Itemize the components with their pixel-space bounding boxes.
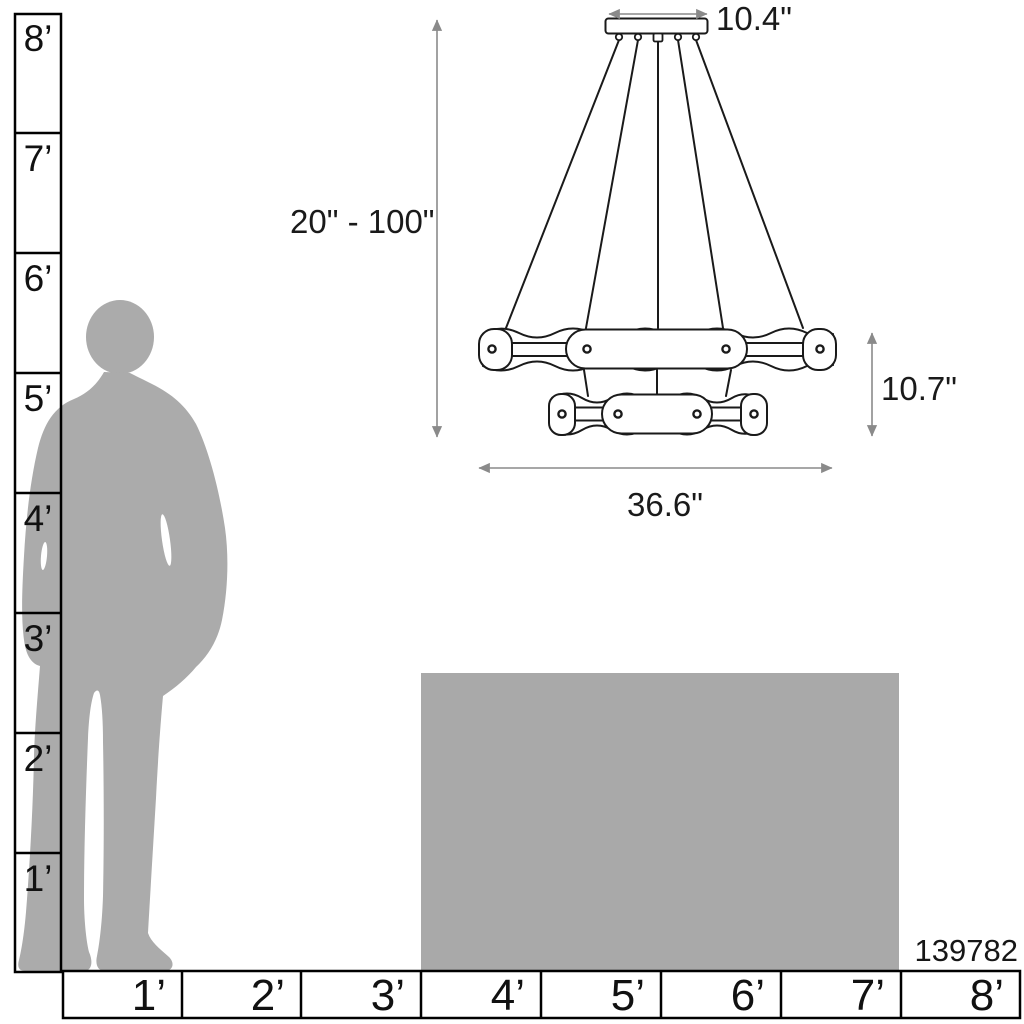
horizontal-ruler-label-3ft: 3’	[301, 973, 421, 1019]
suspension-cables	[506, 40, 803, 328]
chandelier-drawing	[479, 19, 836, 436]
upper-ring-center-shade	[566, 330, 747, 369]
horizontal-ruler-label-6ft: 6’	[661, 973, 781, 1019]
reference-box	[421, 673, 899, 971]
horizontal-ruler-label-4ft: 4’	[421, 973, 541, 1019]
vertical-ruler-label-5ft: 5’	[14, 380, 62, 418]
horizontal-ruler-label-1ft: 1’	[62, 973, 182, 1019]
canopy-width-label: 10.4"	[716, 2, 792, 36]
horizontal-ruler-label-5ft: 5’	[541, 973, 661, 1019]
diagram-canvas	[0, 0, 1024, 1024]
silhouette-head	[86, 300, 154, 374]
product-number: 139782	[860, 933, 1018, 969]
canopy	[606, 19, 708, 34]
vertical-ruler-label-6ft: 6’	[14, 260, 62, 298]
canopy-connectors	[616, 34, 699, 42]
lower-ring	[549, 394, 767, 436]
vertical-ruler-label-4ft: 4’	[14, 500, 62, 538]
suspension-height-label: 20" - 100"	[290, 205, 435, 239]
vertical-ruler-label-1ft: 1’	[14, 860, 62, 898]
horizontal-ruler-label-8ft: 8’	[901, 973, 1020, 1019]
vertical-ruler-label-8ft: 8’	[14, 20, 62, 58]
dimension-diagram: 10.4" 20" - 100" 10.7" 36.6" 8’ 7’ 6’ 5’…	[0, 0, 1024, 1024]
fixture-width-label: 36.6"	[627, 488, 703, 522]
vertical-ruler-label-2ft: 2’	[14, 740, 62, 778]
fixture-height-label: 10.7"	[881, 372, 957, 406]
upper-ring	[479, 329, 836, 371]
horizontal-ruler-label-7ft: 7’	[781, 973, 901, 1019]
vertical-ruler-label-7ft: 7’	[14, 140, 62, 178]
horizontal-ruler-label-2ft: 2’	[182, 973, 301, 1019]
vertical-ruler-label-3ft: 3’	[14, 620, 62, 658]
inter-ring-cables	[584, 370, 731, 396]
